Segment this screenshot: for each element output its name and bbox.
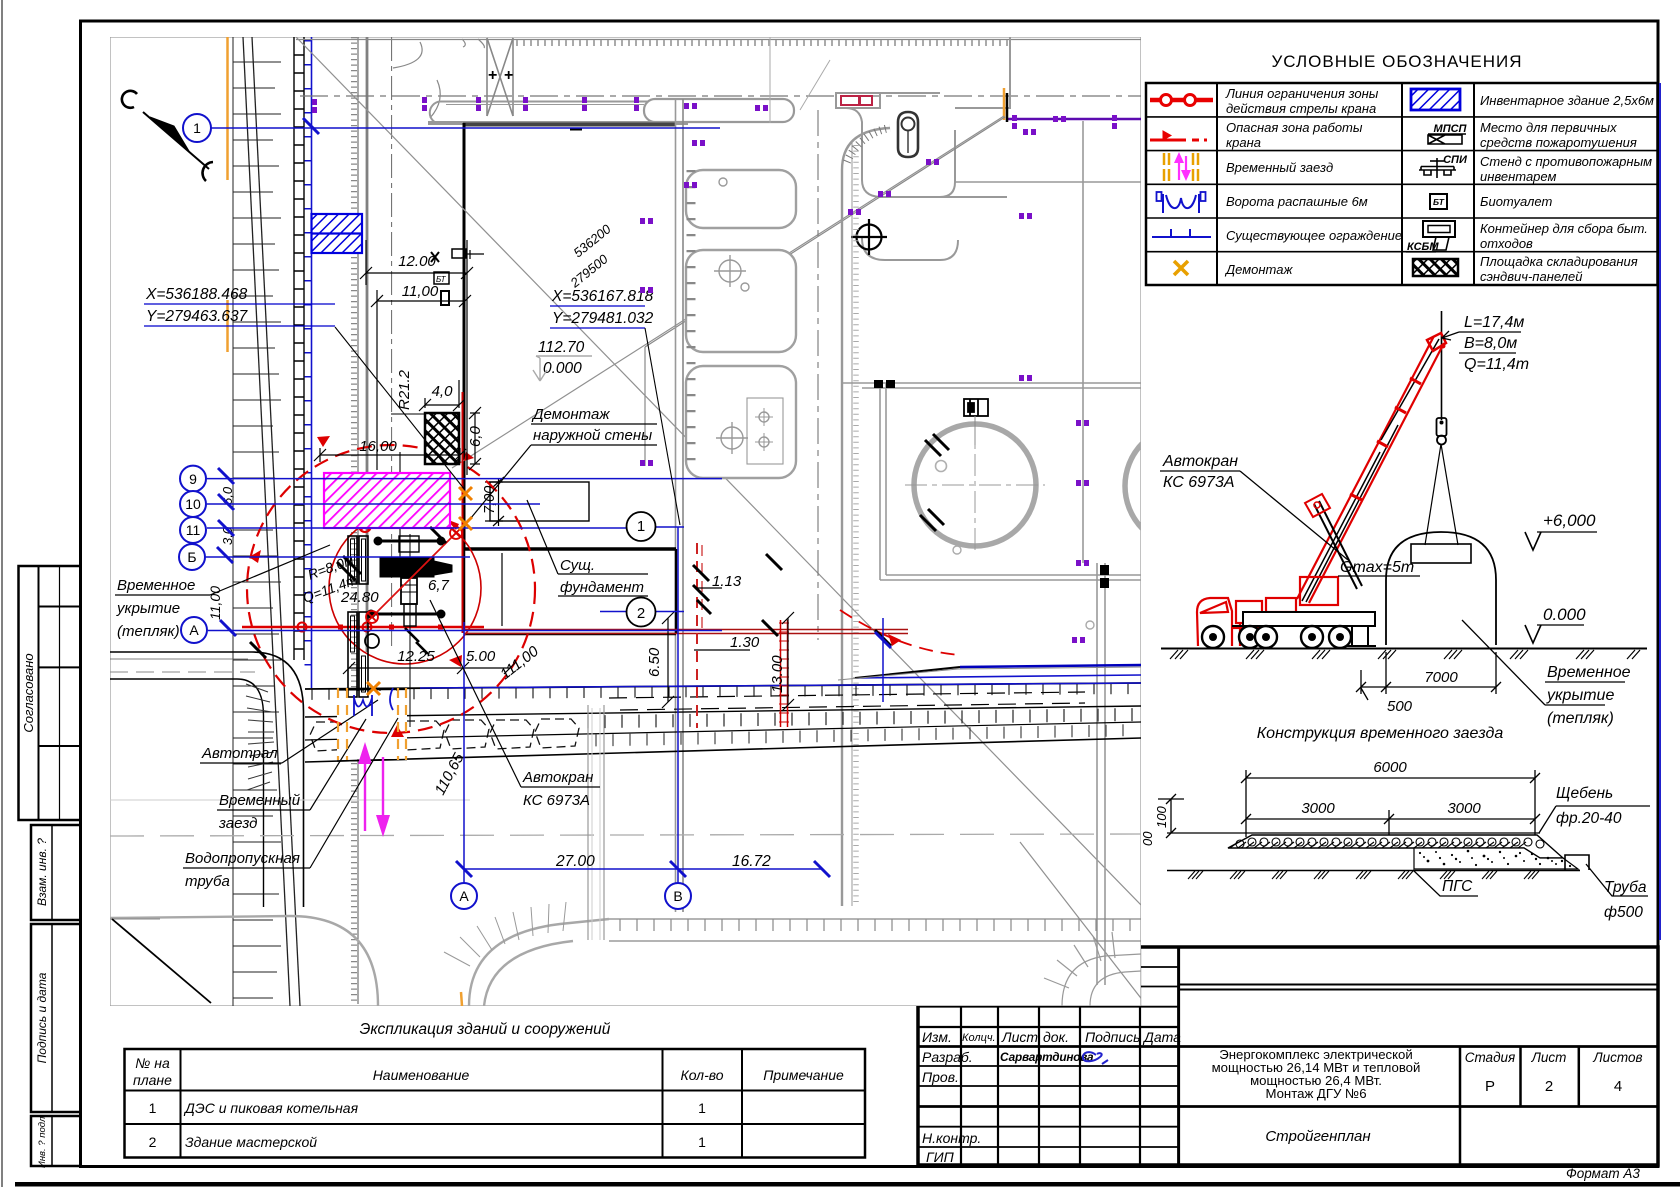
svg-text:+: + [504, 67, 513, 84]
svg-text:X=536188.468: X=536188.468 [145, 286, 248, 303]
svg-text:Существующее ограждение: Существующее ограждение [1226, 228, 1402, 243]
svg-text:инвентарем: инвентарем [1480, 169, 1556, 184]
svg-text:Кол-во: Кол-во [680, 1067, 723, 1083]
svg-text:24.80: 24.80 [340, 589, 379, 606]
svg-text:27.00: 27.00 [555, 853, 595, 870]
svg-text:Н.контр.: Н.контр. [922, 1130, 981, 1146]
svg-text:Щебень: Щебень [1556, 785, 1613, 802]
svg-text:фундамент: фундамент [560, 579, 644, 596]
svg-text:Листов: Листов [1592, 1050, 1642, 1065]
svg-text:0.000: 0.000 [1543, 605, 1586, 624]
svg-text:ПГС: ПГС [1442, 878, 1473, 895]
svg-text:плане: плане [133, 1072, 172, 1088]
svg-text:1: 1 [637, 518, 645, 535]
svg-text:Демонтаж: Демонтаж [531, 406, 610, 423]
svg-text:Y=279463.637: Y=279463.637 [146, 308, 249, 325]
svg-text:КС 6973А: КС 6973А [1163, 474, 1235, 491]
svg-text:Y=279481.032: Y=279481.032 [552, 310, 654, 327]
svg-text:СПИ: СПИ [1443, 154, 1468, 166]
svg-text:Р: Р [1485, 1078, 1495, 1095]
svg-text:Лист: Лист [1531, 1050, 1567, 1065]
svg-text:4: 4 [1614, 1078, 1622, 1095]
svg-text:1: 1 [193, 120, 201, 136]
svg-text:Опасная зона работы: Опасная зона работы [1226, 120, 1363, 135]
svg-text:Лист: Лист [1001, 1029, 1038, 1045]
svg-text:Биотуалет: Биотуалет [1480, 194, 1552, 209]
svg-text:6,7: 6,7 [428, 577, 450, 594]
svg-text:Место для первичных: Место для первичных [1480, 120, 1617, 135]
svg-text:6.50: 6.50 [646, 647, 663, 677]
svg-text:9: 9 [189, 471, 197, 487]
svg-text:11,00: 11,00 [402, 283, 439, 300]
svg-text:А: А [459, 888, 469, 904]
svg-text:отходов: отходов [1480, 236, 1533, 251]
svg-text:1.13: 1.13 [712, 573, 742, 590]
svg-text:Стенд с противопожарным: Стенд с противопожарным [1480, 154, 1652, 169]
svg-text:100: 100 [1154, 806, 1169, 828]
svg-text:Сущ.: Сущ. [560, 557, 595, 574]
svg-text:№ на: № на [135, 1055, 170, 1071]
svg-text:4,0: 4,0 [432, 383, 454, 400]
svg-text:500: 500 [1387, 698, 1413, 715]
svg-text:укрытие: укрытие [1546, 687, 1614, 704]
svg-text:А: А [189, 622, 199, 638]
svg-text:1: 1 [149, 1100, 157, 1116]
svg-text:2: 2 [1545, 1078, 1553, 1095]
svg-text:Формат А3: Формат А3 [1566, 1166, 1640, 1181]
svg-text:112.70: 112.70 [538, 339, 585, 356]
svg-text:Ворота распашные 6м: Ворота распашные 6м [1226, 194, 1368, 209]
svg-text:5.00: 5.00 [466, 648, 496, 665]
svg-text:0.000: 0.000 [543, 360, 582, 377]
svg-text:10: 10 [185, 496, 201, 512]
svg-text:Разраб.: Разраб. [922, 1049, 973, 1065]
svg-text:док.: док. [1043, 1029, 1069, 1045]
svg-text:Взам. инв. ?: Взам. инв. ? [35, 838, 49, 906]
svg-text:средств пожаротушения: средств пожаротушения [1480, 135, 1637, 150]
svg-text:11: 11 [186, 522, 201, 538]
svg-text:7000: 7000 [1424, 669, 1458, 686]
svg-text:Автокран: Автокран [1162, 453, 1238, 470]
svg-text:заезд: заезд [218, 815, 257, 832]
svg-text:Здание мастерской: Здание мастерской [185, 1134, 317, 1150]
svg-text:В: В [673, 888, 682, 904]
svg-text:Временный заезд: Временный заезд [1226, 160, 1333, 175]
svg-text:Экспликация зданий и сооружени: Экспликация зданий и сооружений [360, 1021, 611, 1038]
svg-text:Изм.: Изм. [922, 1029, 952, 1045]
svg-text:16.72: 16.72 [732, 853, 771, 870]
svg-text:сэндвич-панелей: сэндвич-панелей [1480, 269, 1582, 284]
svg-text:X=536167.818: X=536167.818 [551, 288, 654, 305]
svg-text:B=8,0м: B=8,0м [1464, 335, 1517, 352]
svg-text:Согласовано: Согласовано [21, 653, 36, 732]
svg-text:крана: крана [1226, 135, 1261, 150]
svg-text:Водопропускная: Водопропускная [185, 850, 300, 867]
svg-text:Инв. ? подл.: Инв. ? подл. [37, 1114, 48, 1168]
svg-text:КС 6973А: КС 6973А [523, 792, 590, 809]
svg-text:Пров.: Пров. [922, 1069, 959, 1085]
svg-text:3000: 3000 [1447, 800, 1481, 817]
svg-text:1.30: 1.30 [730, 634, 760, 651]
svg-text:Демонтаж: Демонтаж [1224, 262, 1293, 277]
svg-text:Стадия: Стадия [1465, 1050, 1516, 1065]
svg-text:наружной стены: наружной стены [533, 427, 652, 444]
svg-text:фр.20-40: фр.20-40 [1556, 810, 1622, 827]
svg-text:Конструкция временного заезда: Конструкция временного заезда [1257, 725, 1504, 742]
svg-text:Подпись и дата: Подпись и дата [35, 972, 49, 1063]
svg-text:(тепляк): (тепляк) [1547, 710, 1614, 727]
svg-text:труба: труба [185, 873, 230, 890]
svg-text:6000: 6000 [1373, 759, 1407, 776]
svg-text:+: + [488, 67, 497, 84]
svg-text:КСБМ: КСБМ [1407, 241, 1439, 253]
svg-text:Подпись: Подпись [1085, 1029, 1141, 1045]
svg-text:Площадка складирования: Площадка складирования [1480, 254, 1638, 269]
svg-text:укрытие: укрытие [116, 600, 180, 617]
svg-text:Автотрал: Автотрал [201, 745, 278, 762]
svg-text:(тепляк): (тепляк) [117, 623, 180, 640]
svg-text:6,0: 6,0 [467, 425, 484, 447]
svg-text:L=17,4м: L=17,4м [1464, 314, 1524, 331]
svg-text:Сарвартдинова: Сарвартдинова [1000, 1050, 1094, 1064]
svg-text:Наименование: Наименование [373, 1067, 470, 1083]
svg-text:Инвентарное здание 2,5х6м: Инвентарное здание 2,5х6м [1480, 93, 1654, 108]
svg-text:УСЛОВНЫЕ ОБОЗНАЧЕНИЯ: УСЛОВНЫЕ ОБОЗНАЧЕНИЯ [1271, 52, 1522, 71]
svg-text:Линия ограничения зоны: Линия ограничения зоны [1225, 86, 1379, 101]
svg-text:13.00: 13.00 [769, 655, 786, 693]
svg-text:12.00: 12.00 [398, 253, 436, 270]
svg-text:БТ: БТ [1433, 197, 1445, 207]
svg-text:00: 00 [1140, 831, 1155, 846]
svg-text:Стройгенплан: Стройгенплан [1265, 1128, 1370, 1145]
svg-text:1: 1 [698, 1100, 706, 1116]
svg-text:Gmax=5m: Gmax=5m [1340, 559, 1414, 576]
svg-text:12.25: 12.25 [397, 648, 435, 665]
svg-text:действия стрелы крана: действия стрелы крана [1226, 101, 1376, 116]
svg-text:Контейнер для сбора быт.: Контейнер для сбора быт. [1480, 221, 1648, 236]
svg-text:R21.2: R21.2 [396, 369, 413, 410]
svg-text:Временный: Временный [219, 792, 301, 809]
svg-text:16,00: 16,00 [359, 438, 397, 455]
svg-text:Монтаж ДГУ №6: Монтаж ДГУ №6 [1265, 1086, 1366, 1101]
svg-text:Примечание: Примечание [763, 1067, 844, 1083]
svg-text:+6,000: +6,000 [1543, 511, 1596, 530]
svg-text:ДЭС и пиковая котельная: ДЭС и пиковая котельная [183, 1100, 359, 1116]
svg-text:Q=11,4т: Q=11,4т [1464, 356, 1529, 373]
svg-text:Автокран: Автокран [522, 769, 593, 786]
svg-text:Дата: Дата [1142, 1029, 1181, 1045]
svg-text:1: 1 [698, 1134, 706, 1150]
svg-text:2: 2 [637, 605, 645, 622]
svg-text:МПСП: МПСП [1434, 123, 1468, 135]
svg-text:Временное: Временное [1547, 664, 1631, 681]
svg-text:Временное: Временное [117, 577, 195, 594]
svg-text:2: 2 [149, 1134, 157, 1150]
svg-text:Колцч.: Колцч. [962, 1032, 996, 1044]
svg-text:ф500: ф500 [1604, 904, 1643, 921]
svg-text:Б: Б [187, 549, 196, 565]
svg-text:ГИП: ГИП [926, 1149, 955, 1165]
svg-text:3000: 3000 [1301, 800, 1335, 817]
